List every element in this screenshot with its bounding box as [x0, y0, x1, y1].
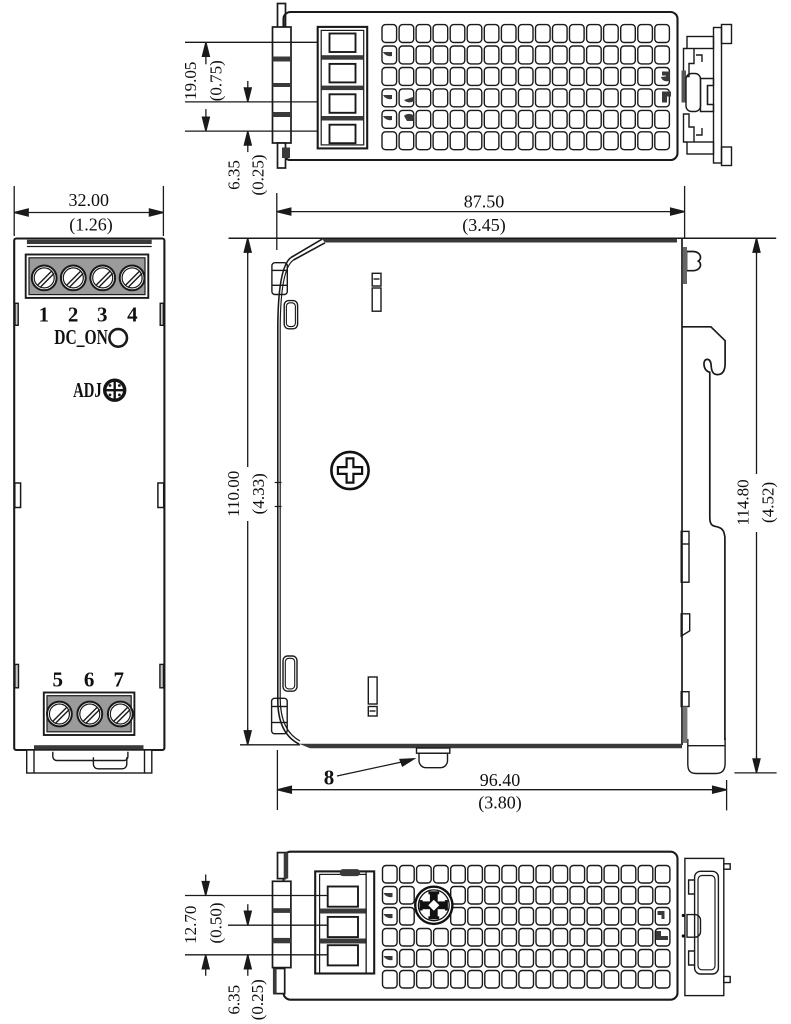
svg-text:(0.50): (0.50) — [206, 902, 225, 943]
svg-text:12.70: 12.70 — [181, 906, 200, 944]
svg-text:ADJ: ADJ — [73, 378, 102, 402]
svg-text:96.40: 96.40 — [480, 770, 521, 790]
svg-text:7: 7 — [114, 668, 125, 692]
svg-text:87.50: 87.50 — [464, 192, 505, 212]
svg-text:(0.25): (0.25) — [248, 979, 267, 1020]
svg-text:1: 1 — [39, 303, 50, 327]
svg-text:32.00: 32.00 — [69, 190, 110, 210]
svg-text:(0.75): (0.75) — [206, 60, 225, 101]
svg-text:(4.33): (4.33) — [249, 473, 268, 514]
svg-text:(3.45): (3.45) — [462, 215, 506, 236]
svg-text:19.05: 19.05 — [181, 62, 200, 100]
svg-text:(0.25): (0.25) — [248, 154, 267, 195]
svg-text:DC_ON: DC_ON — [54, 325, 108, 349]
svg-text:110.00: 110.00 — [224, 471, 243, 517]
svg-text:4: 4 — [127, 303, 138, 327]
svg-text:2: 2 — [68, 303, 79, 327]
svg-text:6.35: 6.35 — [225, 160, 244, 190]
svg-text:8: 8 — [324, 766, 335, 790]
svg-text:(1.26): (1.26) — [69, 215, 113, 236]
svg-text:6.35: 6.35 — [225, 985, 244, 1015]
svg-text:(4.52): (4.52) — [758, 482, 777, 523]
svg-text:5: 5 — [53, 668, 64, 692]
svg-text:114.80: 114.80 — [734, 479, 753, 525]
svg-text:3: 3 — [97, 303, 108, 327]
svg-text:6: 6 — [84, 668, 95, 692]
svg-text:(3.80): (3.80) — [478, 793, 522, 814]
